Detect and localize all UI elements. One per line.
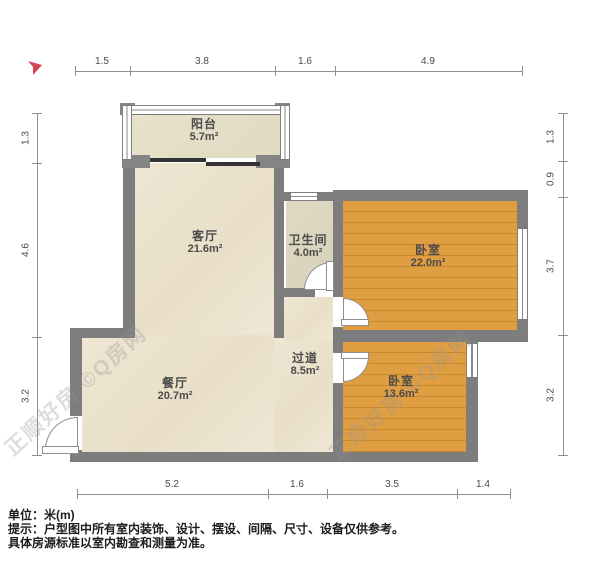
bedroom-main-door-leaf	[341, 319, 369, 326]
wall-dining-left-upper	[70, 328, 82, 416]
dim-bottom-4: 1.4	[476, 479, 490, 490]
dim-right-3: 3.7	[546, 259, 557, 273]
wall-bedroom-small-right-lower	[466, 377, 478, 462]
dim-tick	[335, 66, 336, 76]
floorplan-canvas: 1.5 3.8 1.6 4.9 5.2 1.6 3.5 1.4 1.3 4.6 …	[0, 0, 600, 569]
wall-bedroom-main-right-lower	[517, 318, 528, 342]
room-label-hallway: 过道 8.5m²	[291, 352, 320, 378]
wall-between-bedrooms	[333, 330, 528, 342]
sliding-door-leaf-1	[150, 158, 206, 162]
room-label-bathroom: 卫生间 4.0m²	[288, 234, 327, 260]
room-area: 22.0m²	[411, 257, 446, 270]
bedroom-small-door-leaf	[341, 352, 369, 359]
wall-center-middle	[333, 327, 343, 353]
north-arrow-icon	[24, 55, 44, 77]
dim-tick	[32, 113, 42, 114]
room-area: 20.7m²	[158, 390, 193, 403]
bedroom-main-window	[517, 228, 528, 320]
dim-top-4: 4.9	[421, 56, 435, 67]
wall-center-lower	[333, 383, 343, 462]
hallway-floor-upper	[284, 297, 333, 340]
dim-left-3: 3.2	[21, 389, 32, 403]
tip-note-2: 具体房源标准以室内勘查和测量为准。	[8, 536, 404, 550]
bathroom-door-leaf	[326, 261, 334, 291]
room-label-bedroom-main: 卧室 22.0m²	[411, 244, 446, 270]
dim-top-3: 1.6	[298, 56, 312, 67]
dim-left-1: 1.3	[21, 131, 32, 145]
tip-note: 提示：户型图中所有室内装饰、设计、摆设、间隔、尺寸、设备仅供参考。	[8, 522, 404, 536]
room-area: 21.6m²	[188, 243, 223, 256]
balcony-window-top	[122, 105, 290, 115]
dim-line-bottom	[77, 494, 510, 495]
room-area: 13.6m²	[384, 388, 419, 401]
dim-top-2: 3.8	[195, 56, 209, 67]
dim-line-top	[75, 71, 522, 72]
dim-bottom-2: 1.6	[290, 479, 304, 490]
wall-bathroom-top-right	[317, 192, 333, 201]
dim-left-2: 4.6	[21, 243, 32, 257]
wall-bedroom-main-top	[333, 190, 528, 201]
dim-line-left	[37, 113, 38, 455]
room-label-balcony: 阳台 5.7m²	[190, 118, 219, 144]
dim-tick	[558, 161, 568, 162]
dim-tick	[275, 66, 276, 76]
entry-door-leaf	[42, 446, 79, 454]
dim-right-2: 0.9	[546, 172, 557, 186]
wall-living-right	[274, 163, 284, 338]
sliding-door-leaf-2	[206, 162, 260, 166]
bathroom-window	[290, 192, 318, 201]
unit-note: 单位：米(m)	[8, 508, 404, 522]
bedroom-small-window	[466, 343, 478, 378]
wall-bottom	[70, 452, 478, 462]
dim-tick	[75, 66, 76, 76]
dim-bottom-3: 3.5	[385, 479, 399, 490]
dim-bottom-1: 5.2	[165, 479, 179, 490]
wall-living-left	[123, 163, 135, 338]
room-label-dining: 餐厅 20.7m²	[158, 377, 193, 403]
dim-tick	[558, 197, 568, 198]
room-label-bedroom-small: 卧室 13.6m²	[384, 375, 419, 401]
dim-line-right	[563, 113, 564, 455]
dim-top-1: 1.5	[95, 56, 109, 67]
dim-tick	[327, 489, 328, 499]
balcony-window-left	[122, 105, 132, 160]
dim-right-4: 3.2	[546, 388, 557, 402]
wall-center-upper	[333, 190, 343, 297]
balcony-window-right	[280, 105, 290, 160]
room-label-living: 客厅 21.6m²	[188, 230, 223, 256]
room-name: 餐厅	[158, 377, 193, 390]
footer-notes: 单位：米(m) 提示：户型图中所有室内装饰、设计、摆设、间隔、尺寸、设备仅供参考…	[8, 508, 404, 550]
dim-tick	[77, 489, 78, 499]
room-area: 5.7m²	[190, 131, 219, 144]
room-area: 8.5m²	[291, 365, 320, 378]
dim-tick	[558, 455, 568, 456]
room-name: 过道	[291, 352, 320, 365]
dim-tick	[268, 489, 269, 499]
dim-tick	[32, 455, 42, 456]
room-name: 阳台	[190, 118, 219, 131]
room-name: 卧室	[411, 244, 446, 257]
dim-tick	[558, 335, 568, 336]
room-area: 4.0m²	[288, 247, 327, 260]
dim-tick	[510, 489, 511, 499]
room-name: 卧室	[384, 375, 419, 388]
room-name: 卫生间	[288, 234, 327, 247]
dim-tick	[522, 66, 523, 76]
dim-tick	[558, 113, 568, 114]
dim-right-1: 1.3	[546, 130, 557, 144]
dim-tick	[457, 489, 458, 499]
dim-tick	[32, 163, 42, 164]
dim-tick	[130, 66, 131, 76]
room-name: 客厅	[188, 230, 223, 243]
dim-tick	[32, 337, 42, 338]
